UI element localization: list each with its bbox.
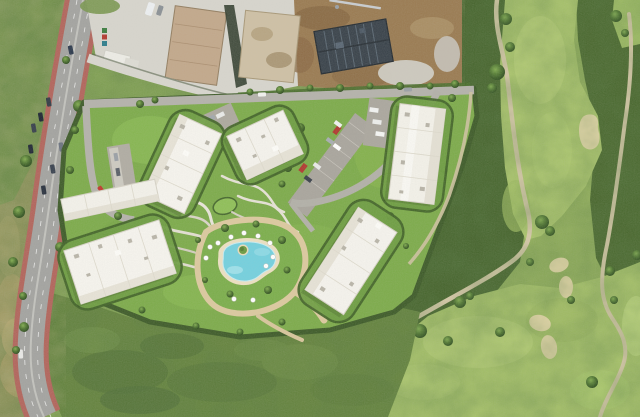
aerial-photo-container	[0, 0, 640, 417]
aerial-scene	[0, 0, 640, 417]
photo-grain	[0, 0, 640, 417]
grain-overlay	[0, 0, 640, 417]
